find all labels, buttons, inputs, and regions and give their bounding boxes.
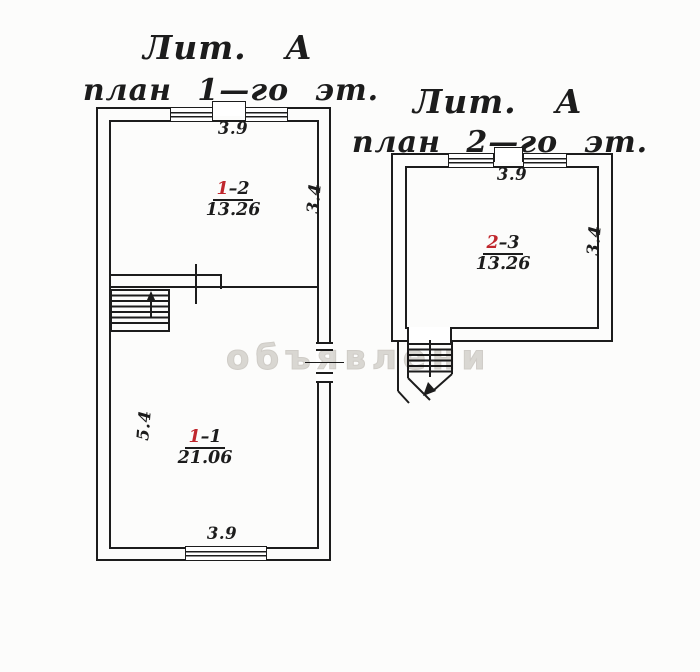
floor1-dim-top: 3.9 — [203, 119, 263, 138]
watermark: объявлени — [226, 338, 491, 378]
floor1-dim-bottom: 3.9 — [192, 524, 252, 543]
room-floor-digit: 1 — [188, 427, 200, 447]
room-floor-digit: 2 — [486, 233, 498, 253]
floor1-door-leaf-line — [195, 264, 197, 304]
floor1-window-bottom — [185, 546, 267, 561]
room-area: 13.26 — [203, 201, 263, 220]
floorplan-document: Лит. А план 1—го эт. Лит. А план 2—го эт… — [0, 0, 700, 672]
floor1-dim-left: 5.4 — [133, 405, 155, 447]
room-2-3-label: 2–3 13.26 — [473, 233, 533, 274]
stairs-down-arrow-icon — [423, 382, 436, 396]
floor2-dim-right: 3.4 — [583, 220, 605, 262]
room-area: 21.06 — [175, 449, 235, 468]
floor1-partition-upper-line — [109, 274, 222, 276]
floor1-top-wall-pier — [212, 101, 246, 116]
room-number-rest: –2 — [229, 179, 250, 199]
floor2-dim-top: 3.9 — [482, 165, 542, 184]
floor1-side-window-cap-bottom — [316, 381, 333, 383]
room-number: 1–1 — [185, 427, 224, 449]
room-1-1-label: 1–1 21.06 — [175, 427, 235, 468]
floor2-title-liter: Лит. А — [413, 82, 583, 121]
room-floor-digit: 1 — [216, 179, 228, 199]
floor1-title-liter: Лит. А — [143, 28, 313, 67]
room-number: 2–3 — [483, 233, 522, 255]
room-number-rest: –3 — [499, 233, 520, 253]
floor1-dim-right: 3.4 — [303, 178, 325, 220]
floor2-top-wall-pier — [494, 147, 523, 162]
floor1-staircase — [110, 289, 170, 332]
room-1-2-label: 1–2 13.26 — [203, 179, 263, 220]
room-number-rest: –1 — [201, 427, 222, 447]
room-number: 1–2 — [213, 179, 252, 201]
room-area: 13.26 — [473, 255, 533, 274]
